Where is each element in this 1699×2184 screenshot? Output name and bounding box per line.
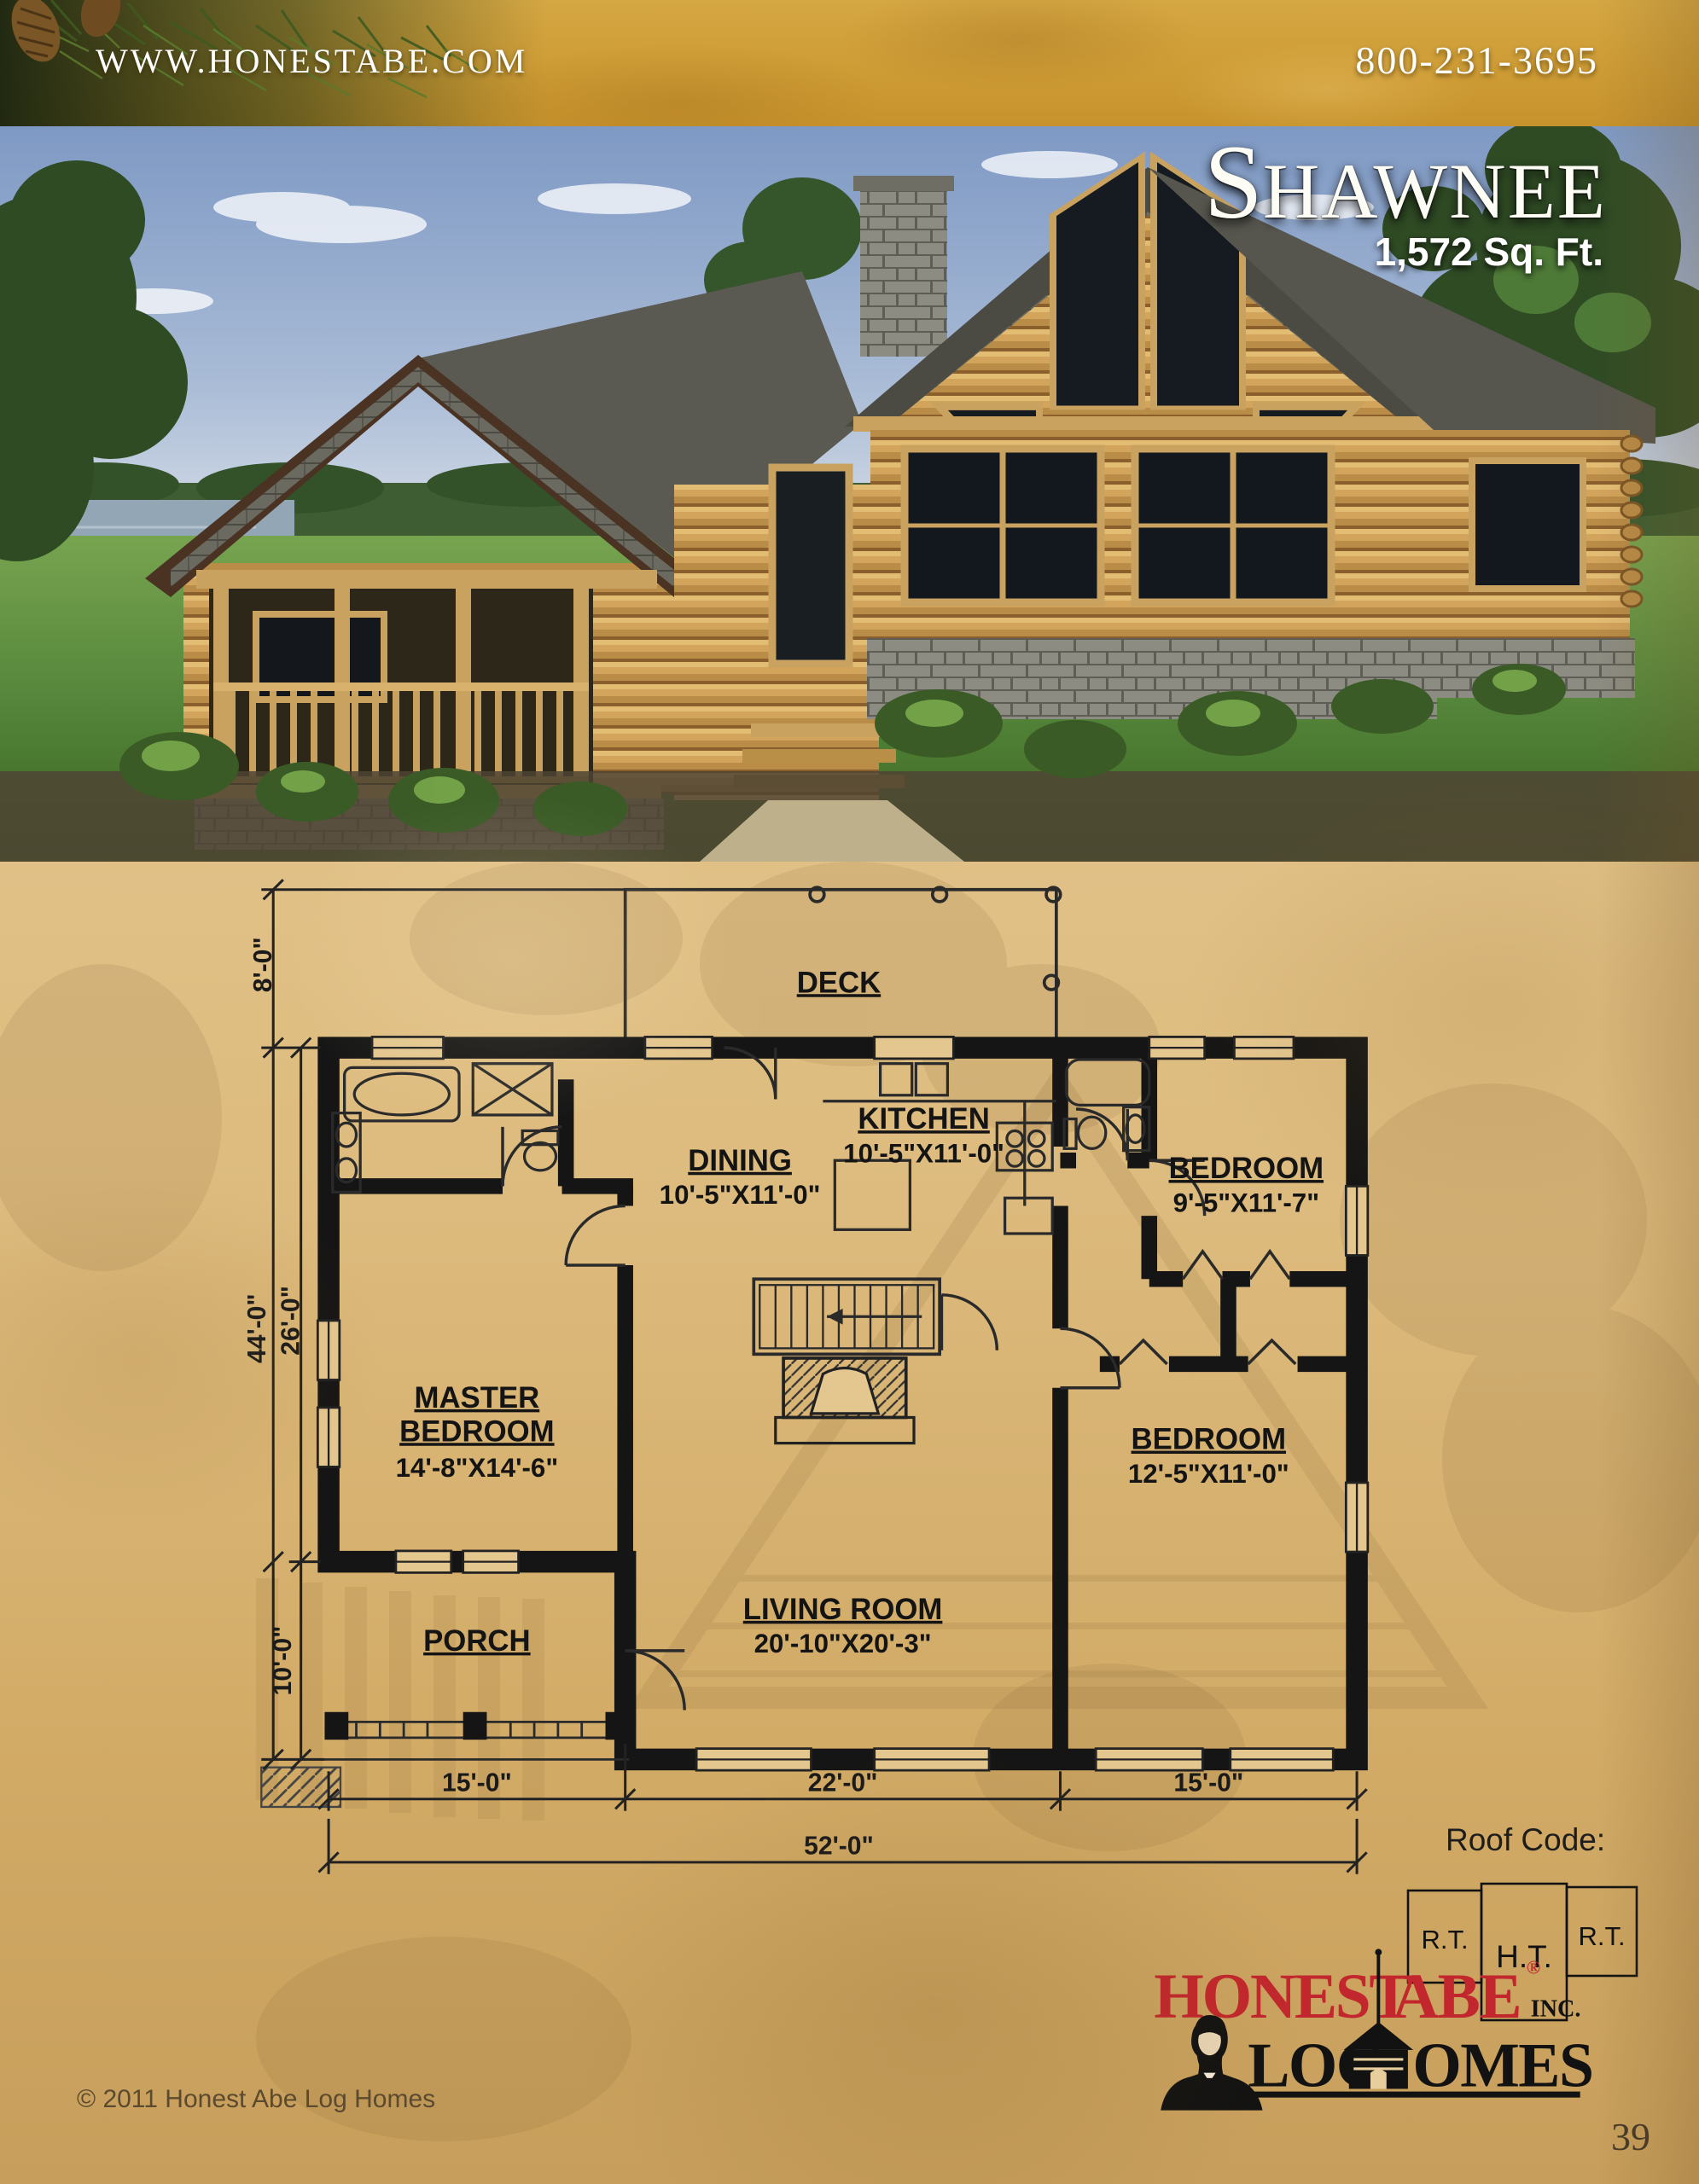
room-label-kitchen: KITCHEN xyxy=(858,1103,989,1136)
room-dims-dining: 10'-5"X11'-0" xyxy=(660,1180,821,1210)
entry-section xyxy=(674,468,905,800)
dim-width-left: 15'-0" xyxy=(442,1769,512,1797)
logo-abe: ABE xyxy=(1393,1961,1521,2032)
dim-width-center: 22'-0" xyxy=(808,1769,878,1797)
right-bath-fixtures xyxy=(1064,1060,1149,1151)
catalog-page: WWW.HONESTABE.COM 800-231-3695 xyxy=(0,0,1699,2184)
room-dims-living: 20'-10"X20'-3" xyxy=(754,1629,932,1658)
logo-underline xyxy=(1247,2092,1580,2098)
deck-outline xyxy=(625,887,1061,1043)
chimney xyxy=(853,176,954,357)
room-label-deck: DECK xyxy=(797,967,881,999)
room-label-bedroom2: BEDROOM xyxy=(1132,1424,1286,1456)
logo-omes: OMES xyxy=(1412,2030,1592,2100)
square-footage: 1,572 Sq. Ft. xyxy=(1375,229,1603,275)
logo-inc: INC. xyxy=(1531,1996,1581,2023)
room-dims-bedroom1: 9'-5"X11'-7" xyxy=(1173,1188,1319,1217)
logo-honest: HONEST xyxy=(1154,1961,1411,2032)
roof-code-label: Roof Code: xyxy=(1446,1822,1691,1858)
dim-width-total: 52'-0" xyxy=(804,1833,874,1861)
dim-porch-depth: 10'-0" xyxy=(269,1626,297,1696)
room-dims-bedroom2: 12'-5"X11'-0" xyxy=(1128,1459,1289,1489)
fireplace xyxy=(776,1358,914,1443)
model-title-rest: HAWNEE xyxy=(1263,148,1607,235)
room-label-master-line2: BEDROOM xyxy=(399,1415,554,1448)
model-title: SHAWNEE xyxy=(1204,130,1607,235)
dim-deck-depth: 8'-0" xyxy=(249,937,277,992)
dim-main-depth: 26'-0" xyxy=(276,1286,305,1356)
dim-width-right: 15'-0" xyxy=(1173,1769,1243,1797)
room-label-dining: DINING xyxy=(688,1145,792,1177)
front-door xyxy=(772,468,849,664)
master-bath-fixtures xyxy=(333,1064,558,1193)
company-logo: HONEST ABE ® INC. LOG OMES xyxy=(1085,1947,1649,2128)
gable-fascia xyxy=(853,416,1451,432)
copyright-notice: © 2011 Honest Abe Log Homes xyxy=(77,2085,435,2114)
model-title-initial: S xyxy=(1204,124,1263,241)
room-label-porch: PORCH xyxy=(423,1625,531,1658)
room-label-master-line1: MASTER xyxy=(415,1382,540,1414)
room-label-bedroom1: BEDROOM xyxy=(1169,1153,1324,1185)
room-dims-kitchen: 10'-5"X11'-0" xyxy=(843,1139,1004,1169)
site-url: WWW.HONESTABE.COM xyxy=(96,41,527,81)
page-number: 39 xyxy=(1611,2114,1650,2159)
phone-number: 800-231-3695 xyxy=(1355,38,1598,83)
logo-registered: ® xyxy=(1527,1956,1540,1978)
right-window xyxy=(1472,461,1583,589)
room-label-living: LIVING ROOM xyxy=(743,1594,943,1626)
staircase xyxy=(753,1279,940,1354)
header-band: WWW.HONESTABE.COM 800-231-3695 xyxy=(0,0,1699,131)
floor-plan: 8'-0" 44'-0" 26'-0" 10'-0" 15'-0" 22'-0"… xyxy=(180,860,1486,1888)
main-wall xyxy=(867,430,1437,719)
dim-overall-depth: 44'-0" xyxy=(243,1293,271,1363)
room-dims-master: 14'-8"X14'-6" xyxy=(396,1453,559,1483)
